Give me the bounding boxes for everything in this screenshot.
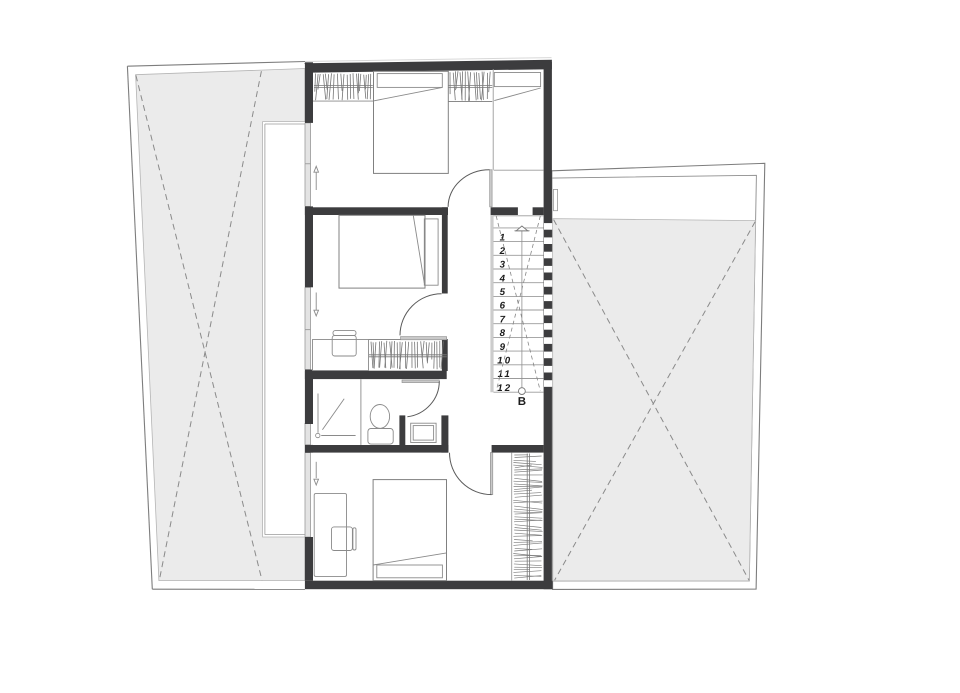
svg-text:1: 1 — [500, 232, 505, 243]
svg-text:B: B — [518, 396, 526, 408]
svg-text:8: 8 — [500, 328, 506, 339]
svg-text:12: 12 — [497, 383, 512, 394]
svg-text:5: 5 — [500, 287, 506, 298]
svg-text:6: 6 — [500, 301, 506, 312]
svg-text:7: 7 — [500, 314, 506, 325]
svg-text:3: 3 — [500, 260, 506, 271]
svg-text:9: 9 — [500, 342, 506, 353]
svg-text:4: 4 — [499, 273, 506, 284]
